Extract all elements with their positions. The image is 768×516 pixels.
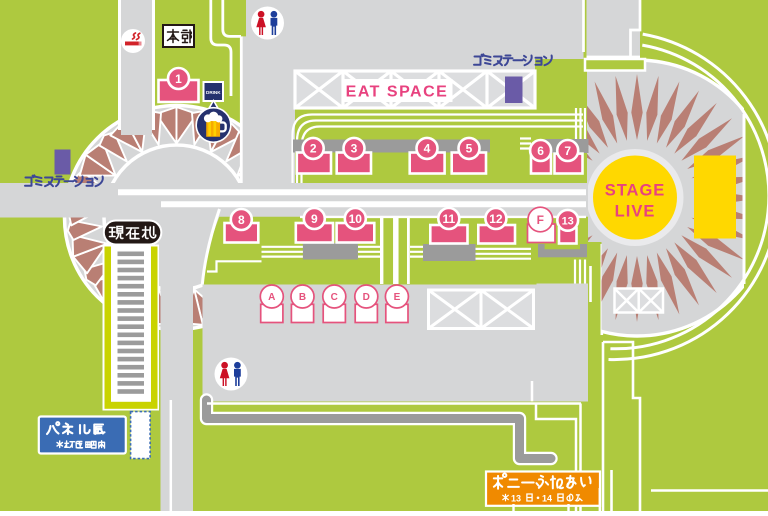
svg-text:9: 9 — [311, 212, 318, 226]
svg-text:12: 12 — [489, 212, 503, 226]
svg-text:3: 3 — [351, 142, 358, 156]
svg-text:7: 7 — [564, 144, 571, 158]
svg-text:A: A — [268, 292, 275, 303]
svg-text:C: C — [331, 292, 338, 303]
svg-text:LIVE: LIVE — [615, 203, 656, 221]
svg-text:10: 10 — [349, 212, 363, 226]
svg-text:6: 6 — [537, 144, 544, 158]
svg-text:DRINK: DRINK — [206, 90, 221, 95]
svg-text:13: 13 — [511, 494, 521, 504]
svg-text:5: 5 — [466, 142, 473, 156]
svg-text:1: 1 — [175, 72, 182, 86]
svg-text:13: 13 — [562, 215, 574, 227]
svg-text:F: F — [537, 213, 544, 227]
svg-text:B: B — [299, 292, 306, 303]
svg-text:E: E — [394, 292, 401, 303]
svg-text:8: 8 — [238, 213, 245, 227]
svg-text:11: 11 — [442, 212, 455, 226]
svg-text:2: 2 — [310, 142, 317, 156]
svg-text:14: 14 — [542, 494, 552, 504]
svg-text:D: D — [363, 292, 370, 303]
svg-text:STAGE: STAGE — [605, 182, 666, 200]
svg-text:EAT SPACE: EAT SPACE — [346, 84, 449, 101]
svg-text:4: 4 — [424, 142, 431, 156]
